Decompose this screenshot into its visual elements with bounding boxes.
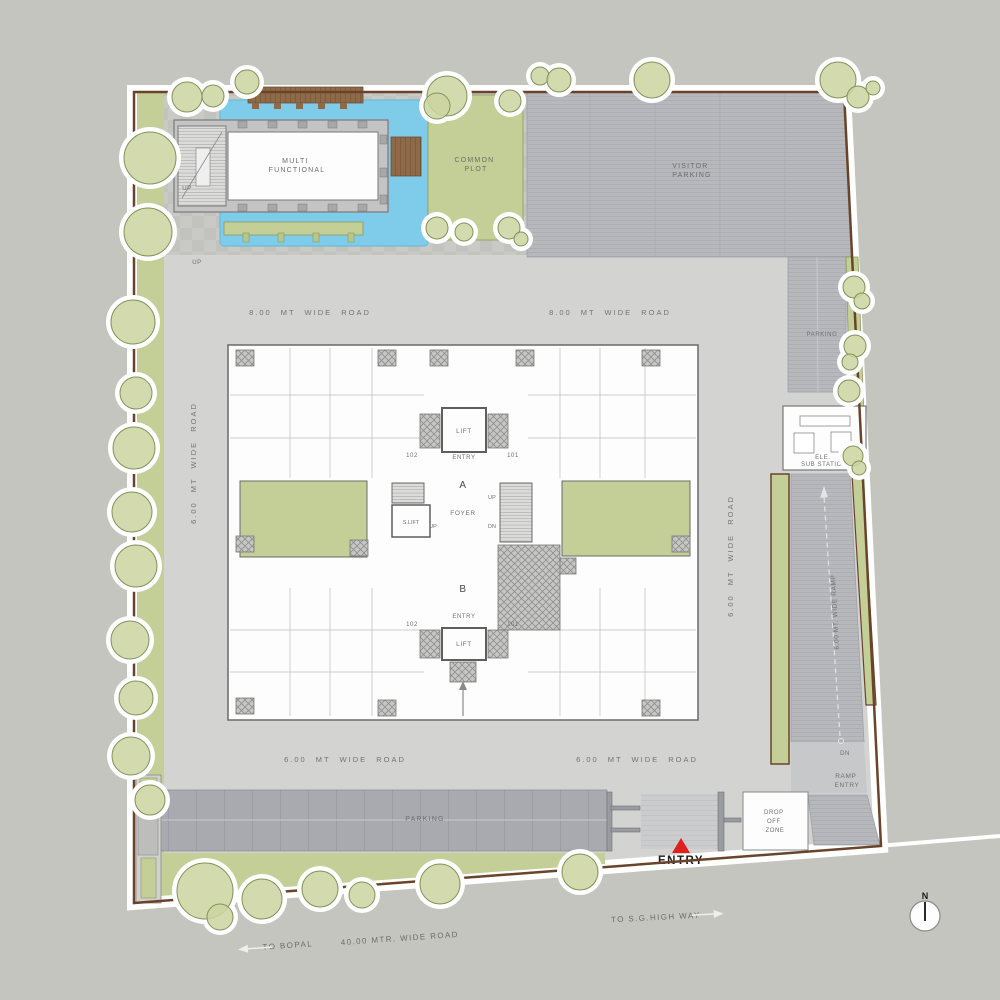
lift-top-label: LIFT [456, 428, 472, 435]
tree-icon [842, 354, 858, 370]
balcony-shaft [236, 698, 254, 714]
unit-101-top: 101 [507, 453, 519, 459]
shaft-bottom-left [420, 630, 440, 658]
site-plan-drawing: MULTI FUNCTIONAL UP UP COMMON PLOT VISIT… [0, 0, 1000, 1000]
tree-icon [119, 681, 153, 715]
ele-panel [800, 416, 850, 426]
balcony-shaft [642, 350, 660, 366]
tree-icon [112, 737, 150, 775]
tree-icon [547, 68, 571, 92]
lift-bottom-label: LIFT [456, 641, 472, 648]
shaft-top-left [420, 414, 440, 448]
courtyard-right [562, 481, 690, 556]
shaft-bottom-center [450, 662, 476, 682]
courtyard-left [240, 481, 367, 557]
road-6mt-bottom-right-label: 6.00 MT WIDE ROAD [576, 755, 698, 764]
transformer-1 [794, 433, 814, 453]
tree-icon [838, 380, 860, 402]
tree-icon [562, 854, 598, 890]
tree-icon [172, 82, 202, 112]
tree-icon [242, 879, 282, 919]
ramp-dn-label: DN [840, 751, 850, 757]
ramp-left-green [771, 474, 789, 764]
north-label: N [922, 891, 929, 901]
road-6mt-right-label: 6.00 MT WIDE ROAD [726, 495, 735, 617]
tree-icon [349, 882, 375, 908]
tree-icon [844, 335, 866, 357]
tree-icon [499, 90, 521, 112]
tree-icon [124, 132, 176, 184]
ramp-entry-apron [808, 795, 880, 845]
unit-101-bottom: 101 [507, 622, 519, 628]
unit-102-bottom: 102 [406, 622, 418, 628]
tree-icon [514, 232, 528, 246]
balcony-shaft [672, 536, 690, 552]
balcony-shaft [236, 350, 254, 366]
unit-102-top: 102 [406, 453, 418, 459]
balcony-shaft [350, 540, 368, 556]
tree-icon [113, 427, 155, 469]
tree-icon [854, 293, 870, 309]
tree-icon [302, 871, 338, 907]
tree-icon [455, 223, 473, 241]
up-left-label: UP [429, 524, 437, 530]
tree-icon [120, 377, 152, 409]
shaft-bottom-right [488, 630, 508, 658]
pool-deck-bench [248, 87, 363, 103]
site-plan-canvas: MULTI FUNCTIONAL UP UP COMMON PLOT VISIT… [0, 0, 1000, 1000]
road-6mt-left-label: 6.00 MT WIDE ROAD [189, 402, 198, 524]
tree-icon [634, 62, 670, 98]
dn-right-label: DN [488, 524, 496, 530]
road-8mt-right-label: 8.00 MT WIDE ROAD [549, 308, 671, 317]
tree-icon [135, 785, 165, 815]
balcony-shaft [378, 700, 396, 716]
tree-icon [852, 461, 866, 475]
balcony-shaft [558, 558, 576, 574]
balcony-shaft [516, 350, 534, 366]
stair-left [392, 483, 424, 503]
up-right-label: UP [488, 495, 496, 501]
tree-icon [202, 85, 224, 107]
entry-bottom-label: ENTRY [452, 614, 475, 620]
balcony-shaft [378, 350, 396, 366]
tree-icon [115, 545, 157, 587]
tree-icon [124, 208, 172, 256]
bottom-parking-label: PARKING [405, 816, 444, 823]
balcony-shaft [236, 536, 254, 552]
tree-icon [424, 93, 450, 119]
balcony-shaft [430, 350, 448, 366]
tree-icon [112, 492, 152, 532]
s-lift-label: S.LIFT [403, 520, 420, 526]
shaft-mid-right [498, 545, 560, 630]
tree-icon [235, 70, 259, 94]
stair-right [500, 483, 532, 542]
foyer-label: FOYER [450, 510, 475, 517]
road-8mt-left-label: 8.00 MT WIDE ROAD [249, 308, 371, 317]
stair-landing [196, 148, 210, 186]
block-a-label: A [459, 480, 466, 491]
tree-icon [866, 81, 880, 95]
tree-icon [531, 67, 549, 85]
residential-building: LIFT ENTRY 102 101 A S.LIFT UP UP DN FOY… [228, 345, 698, 720]
balcony-shaft [642, 700, 660, 716]
shaft-top-right [488, 414, 508, 448]
tree-icon [420, 864, 460, 904]
tree-icon [111, 300, 155, 344]
drop-off-zone-label: DROP OFF ZONE [764, 810, 786, 834]
multi-functional-hall [228, 132, 378, 200]
entry-top-label: ENTRY [452, 455, 475, 461]
right-parking-label: PARKING [807, 332, 838, 338]
pool-deck-bridge [391, 137, 421, 176]
club-up-label: UP [182, 186, 192, 192]
tree-icon [426, 217, 448, 239]
walk-up-label: UP [192, 260, 202, 266]
tree-icon [207, 904, 233, 930]
tree-icon [111, 621, 149, 659]
road-6mt-bottom-left-label: 6.00 MT WIDE ROAD [284, 755, 406, 764]
block-b-label: B [459, 584, 466, 595]
